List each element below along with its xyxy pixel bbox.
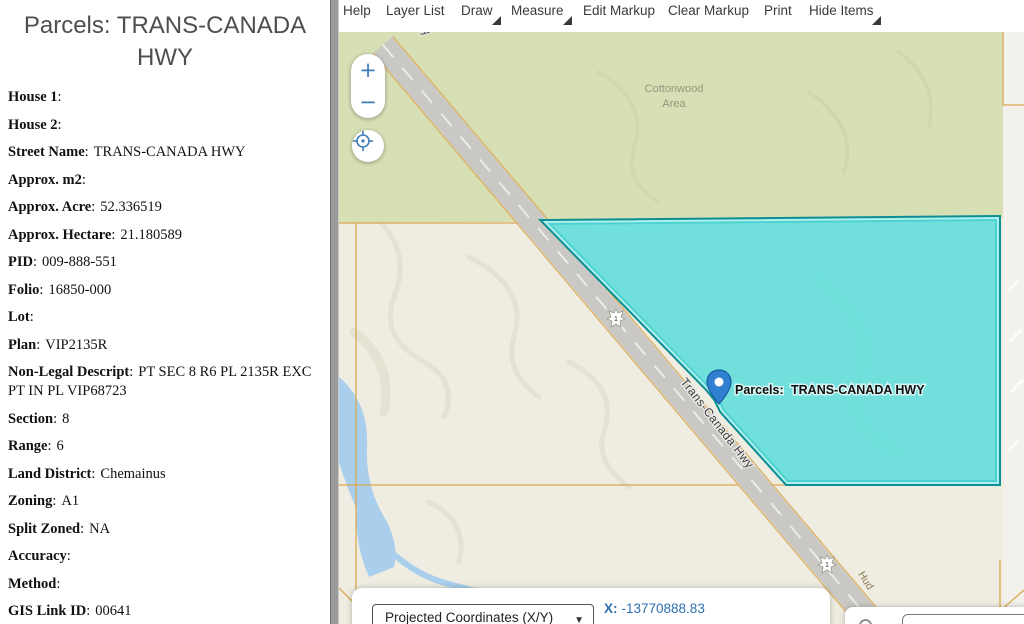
sidebar-map-divider[interactable] (330, 0, 339, 624)
select-caret-icon: ▼ (574, 608, 584, 624)
menu-layer-list[interactable]: Layer List (386, 3, 445, 18)
field-lot: Lot (8, 308, 322, 327)
field-house1: House 1 (8, 88, 322, 107)
draw-dropdown-caret-icon[interactable] (492, 16, 501, 25)
field-nonlegal: Non-Legal DescriptPT SEC 8 R6 PL 2135R E… (8, 363, 322, 401)
field-zoning: ZoningA1 (8, 492, 322, 511)
parcel-info-sidebar: Parcels: TRANS-CANADA HWY House 1 House … (0, 0, 330, 624)
menu-draw[interactable]: Draw (461, 3, 493, 18)
x-coordinate-readout: X:-13770888.83 (604, 601, 705, 616)
field-range: Range6 (8, 437, 322, 456)
map-canvas[interactable]: Cottonwood Area (339, 32, 1024, 624)
area-label-line2: Area (662, 98, 686, 110)
x-coordinate-value: -13770888.83 (622, 601, 705, 616)
menu-clear-markup[interactable]: Clear Markup (668, 3, 749, 18)
crosshair-icon (352, 130, 374, 152)
menu-measure[interactable]: Measure (511, 3, 564, 18)
bottom-right-panel (845, 607, 1024, 624)
zoom-in-button[interactable]: + (351, 54, 385, 86)
coordinates-panel: Projected Coordinates (X/Y) ▼ X:-1377088… (352, 588, 830, 624)
field-folio: Folio16850-000 (8, 281, 322, 300)
measure-dropdown-caret-icon[interactable] (563, 16, 572, 25)
svg-text:1: 1 (825, 562, 829, 569)
menu-help[interactable]: Help (343, 3, 371, 18)
right-road-strip (1003, 32, 1024, 624)
locate-button[interactable] (352, 130, 384, 162)
parcel-callout-prefix: Parcels: (735, 383, 784, 397)
map-toolbar: Help Layer List Draw Measure Edit Markup… (339, 0, 1024, 32)
field-accuracy: Accuracy (8, 547, 322, 566)
map-base-layer: Cottonwood Area (339, 32, 1024, 624)
field-split-zoned: Split ZonedNA (8, 520, 322, 539)
coordinate-format-select[interactable]: Projected Coordinates (X/Y) ▼ (372, 604, 594, 624)
page-title: Parcels: TRANS-CANADA HWY (10, 10, 320, 74)
gis-parcel-viewer: Parcels: TRANS-CANADA HWY House 1 House … (0, 0, 1024, 624)
coordinate-format-value: Projected Coordinates (X/Y) (385, 610, 553, 624)
menu-edit-markup[interactable]: Edit Markup (583, 3, 655, 18)
zoom-out-button[interactable]: − (351, 86, 385, 118)
field-plan: PlanVIP2135R (8, 336, 322, 355)
field-approx-acre: Approx. Acre52.336519 (8, 198, 322, 217)
field-method: Method (8, 575, 322, 594)
field-gis-link-id: GIS Link ID00641 (8, 602, 322, 621)
field-section: Section8 (8, 410, 322, 429)
field-approx-m2: Approx. m2 (8, 171, 322, 190)
field-land-district: Land DistrictChemainus (8, 465, 322, 484)
search-icon (859, 619, 872, 624)
zoom-controls: + − (351, 54, 385, 118)
field-street-name: Street NameTRANS-CANADA HWY (8, 143, 322, 162)
area-label-line1: Cottonwood (645, 83, 704, 95)
x-coordinate-label: X: (604, 601, 618, 616)
menu-print[interactable]: Print (764, 3, 792, 18)
field-pid: PID009-888-551 (8, 253, 322, 272)
field-house2: House 2 (8, 116, 322, 135)
bottom-right-input[interactable] (902, 614, 1024, 624)
svg-text:1: 1 (614, 316, 618, 323)
parcel-callout-value: TRANS-CANADA HWY (791, 383, 925, 397)
field-approx-hectare: Approx. Hectare21.180589 (8, 226, 322, 245)
hide-items-dropdown-caret-icon[interactable] (872, 16, 881, 25)
menu-hide-items[interactable]: Hide Items (809, 3, 874, 18)
parcel-fields: House 1 House 2 Street NameTRANS-CANADA … (0, 88, 330, 624)
